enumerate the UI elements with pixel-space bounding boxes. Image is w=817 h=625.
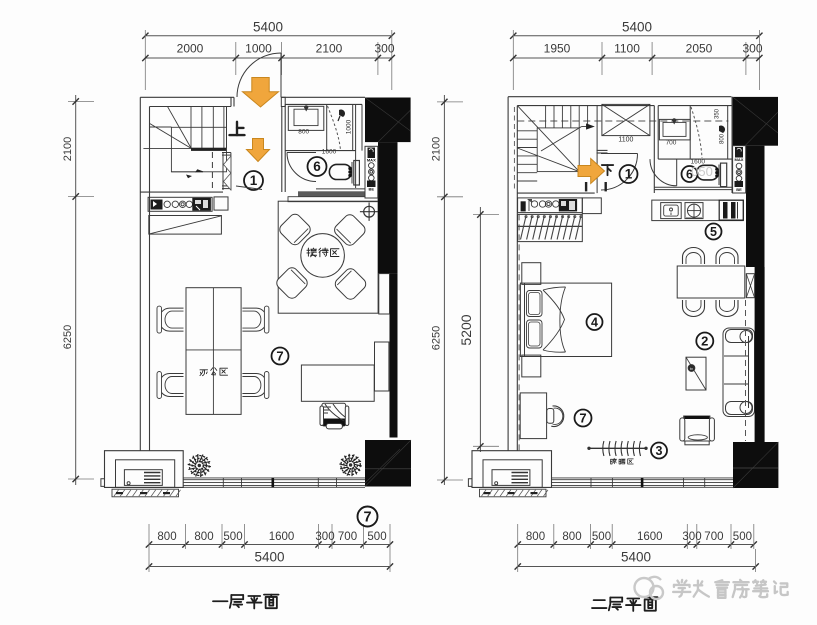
svg-text:1000: 1000 [245, 42, 272, 56]
svg-text:1600: 1600 [637, 531, 663, 543]
svg-text:BE: BE [369, 187, 375, 192]
svg-text:300: 300 [315, 531, 334, 543]
svg-text:5: 5 [710, 225, 717, 239]
svg-text:2: 2 [701, 334, 708, 349]
svg-text:800: 800 [157, 531, 176, 543]
svg-text:800: 800 [194, 531, 213, 543]
svg-text:2100: 2100 [62, 137, 74, 161]
svg-text:MAX: MAX [367, 158, 376, 163]
svg-text:5400: 5400 [622, 20, 652, 35]
svg-text:BE: BE [736, 187, 742, 192]
svg-text:1000: 1000 [346, 119, 353, 134]
svg-text:300: 300 [742, 42, 762, 56]
svg-text:7: 7 [276, 349, 283, 364]
svg-text:6250: 6250 [62, 325, 74, 349]
svg-text:500: 500 [592, 531, 611, 543]
svg-text:500: 500 [223, 531, 242, 543]
svg-text:3: 3 [656, 444, 663, 458]
svg-text:1100: 1100 [614, 42, 640, 56]
svg-text:700: 700 [704, 531, 723, 543]
svg-text:300: 300 [374, 42, 394, 56]
svg-text:700: 700 [666, 140, 677, 147]
svg-text:800: 800 [298, 129, 309, 136]
svg-text:5400: 5400 [254, 550, 284, 565]
svg-text:350: 350 [715, 108, 721, 119]
svg-text:5400: 5400 [253, 20, 283, 35]
svg-text:2100: 2100 [431, 137, 443, 161]
svg-text:6: 6 [313, 159, 321, 174]
svg-text:1950: 1950 [544, 42, 571, 56]
svg-text:1100: 1100 [618, 137, 633, 144]
svg-text:800: 800 [526, 531, 545, 543]
svg-text:2050: 2050 [686, 42, 713, 56]
svg-text:5400: 5400 [621, 550, 651, 565]
svg-text:7: 7 [579, 411, 586, 426]
svg-text:050: 050 [691, 164, 713, 179]
svg-text:700: 700 [338, 531, 357, 543]
svg-text:7: 7 [363, 510, 371, 526]
svg-text:500: 500 [733, 531, 752, 543]
svg-text:MAX: MAX [735, 157, 744, 162]
svg-text:1: 1 [250, 173, 258, 188]
svg-text:1600: 1600 [322, 148, 337, 155]
svg-text:4: 4 [591, 315, 598, 329]
svg-text:500: 500 [367, 531, 386, 543]
svg-text:800: 800 [562, 531, 581, 543]
svg-text:300: 300 [682, 531, 701, 543]
svg-text:5200: 5200 [458, 314, 474, 345]
svg-text:6250: 6250 [431, 326, 443, 350]
svg-text:tv: tv [690, 367, 693, 371]
svg-text:2100: 2100 [316, 42, 343, 56]
svg-text:800: 800 [720, 133, 726, 144]
svg-text:1600: 1600 [269, 531, 295, 543]
svg-text:1: 1 [625, 167, 633, 182]
svg-text:2000: 2000 [177, 42, 204, 56]
